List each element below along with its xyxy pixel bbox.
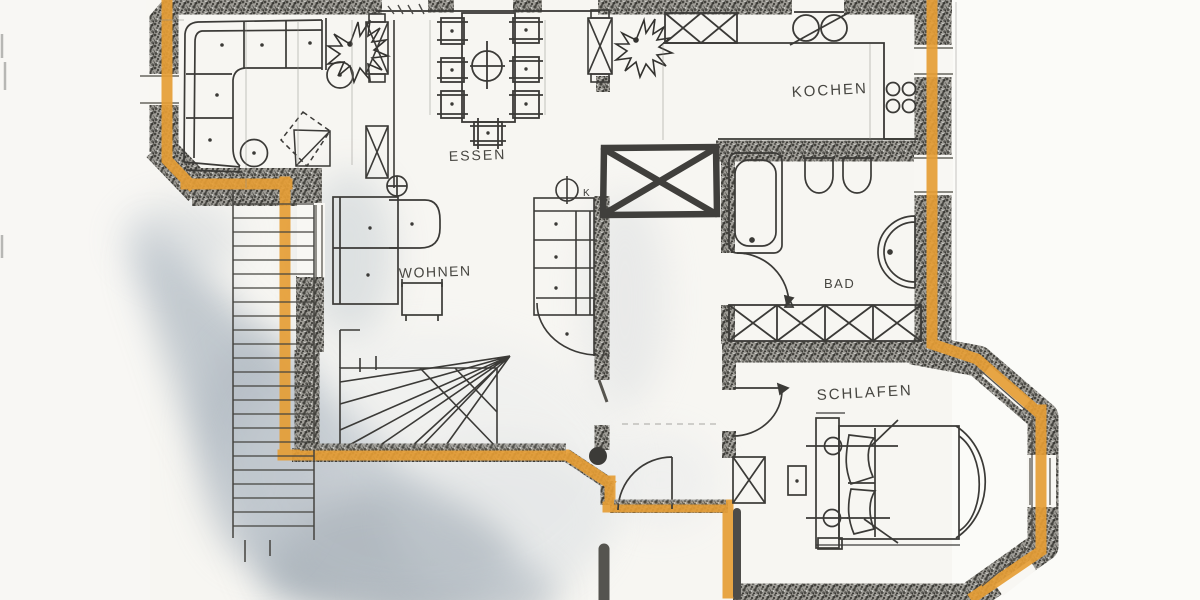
svg-text:BAD: BAD (824, 276, 855, 291)
svg-text:K: K (583, 188, 590, 199)
svg-text:ESSEN: ESSEN (449, 146, 507, 164)
svg-text:WOHNEN: WOHNEN (399, 262, 472, 281)
